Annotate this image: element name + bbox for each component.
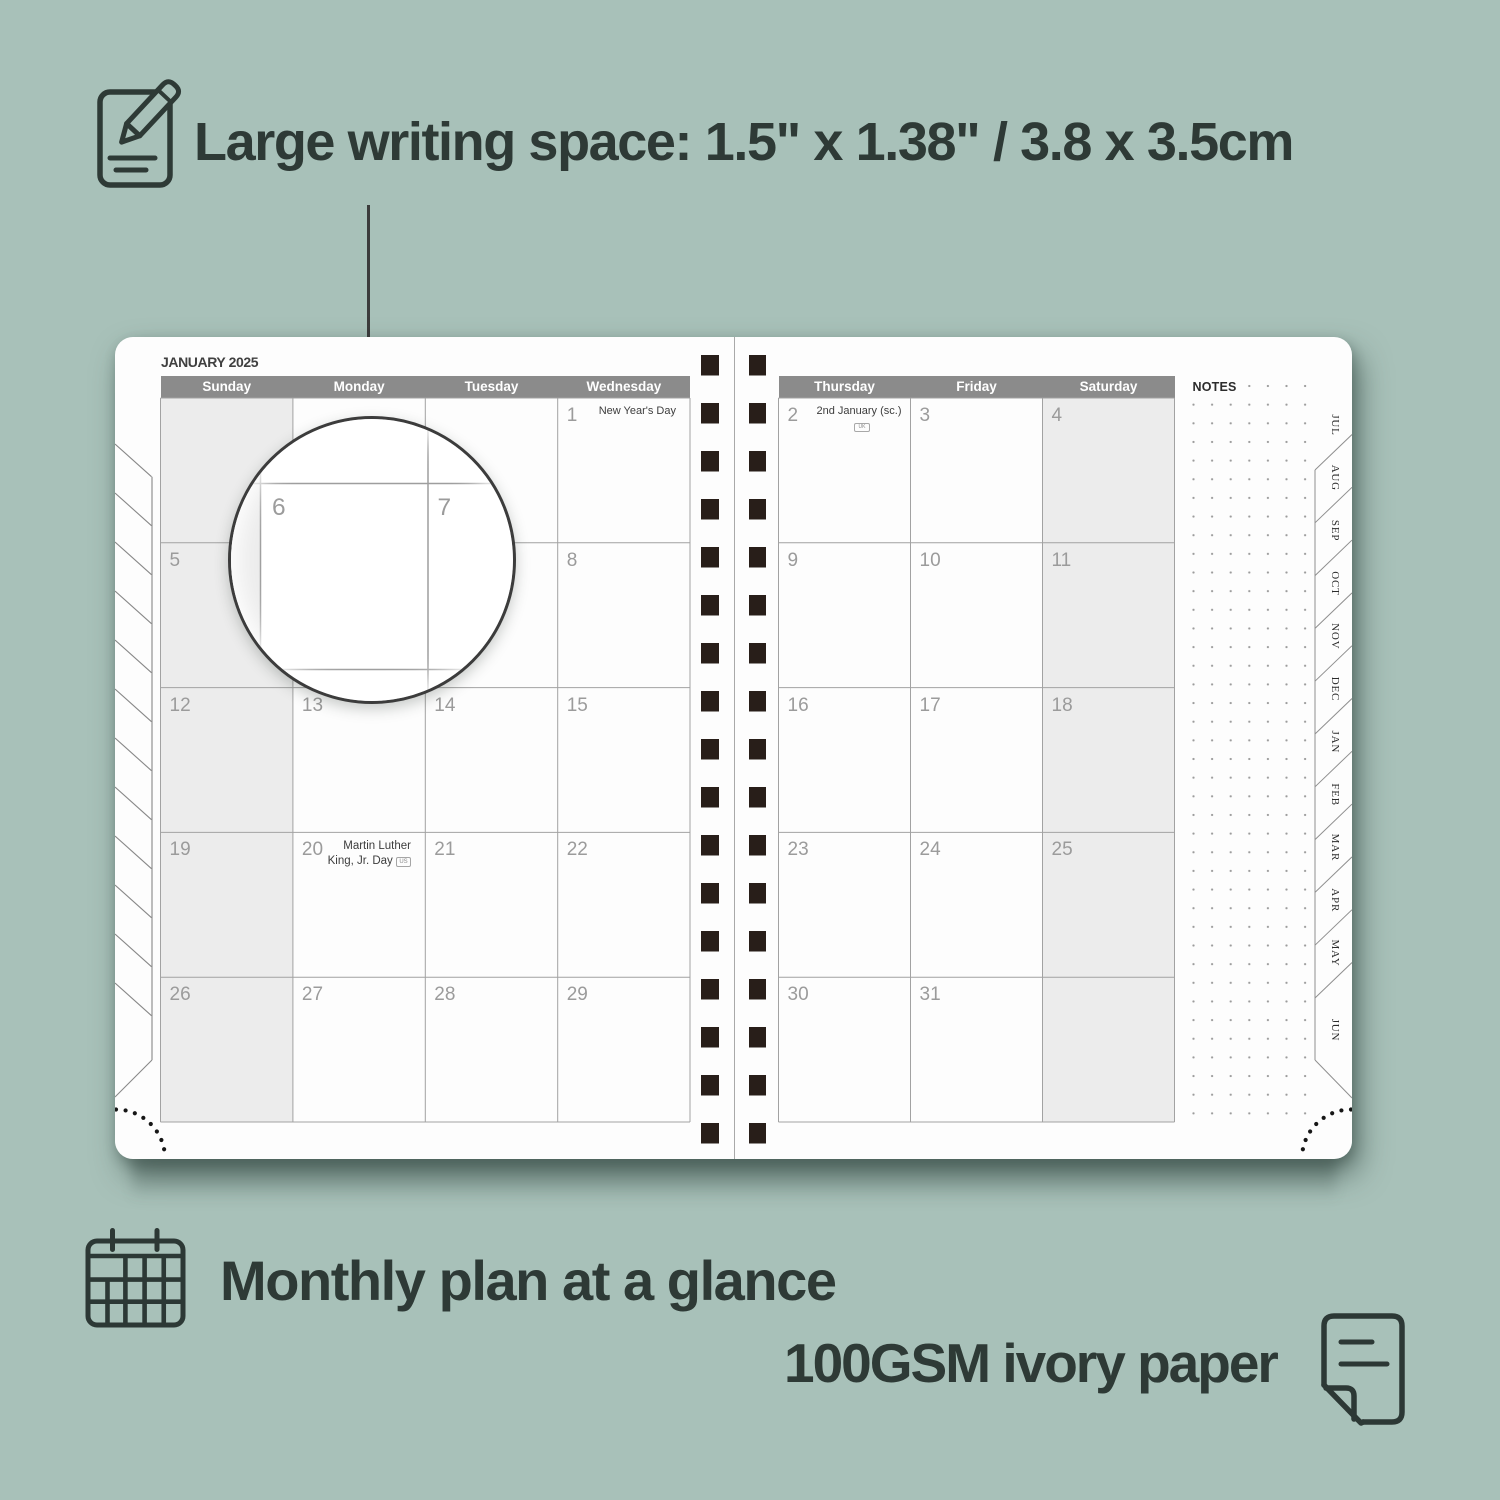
svg-text:MAR: MAR [1329,834,1341,861]
svg-text:FEB: FEB [1329,783,1341,806]
svg-text:JUL: JUL [1329,414,1341,435]
svg-text:JAN: JAN [1329,731,1341,754]
svg-text:AUG: AUG [1329,465,1341,491]
svg-text:APR: APR [1329,888,1341,912]
svg-text:OCT: OCT [1329,571,1341,595]
svg-text:JUN: JUN [1329,1019,1341,1042]
svg-text:MAY: MAY [1329,939,1341,966]
svg-text:NOV: NOV [1329,623,1341,649]
svg-text:DEC: DEC [1329,677,1341,701]
svg-text:SEP: SEP [1329,520,1341,541]
